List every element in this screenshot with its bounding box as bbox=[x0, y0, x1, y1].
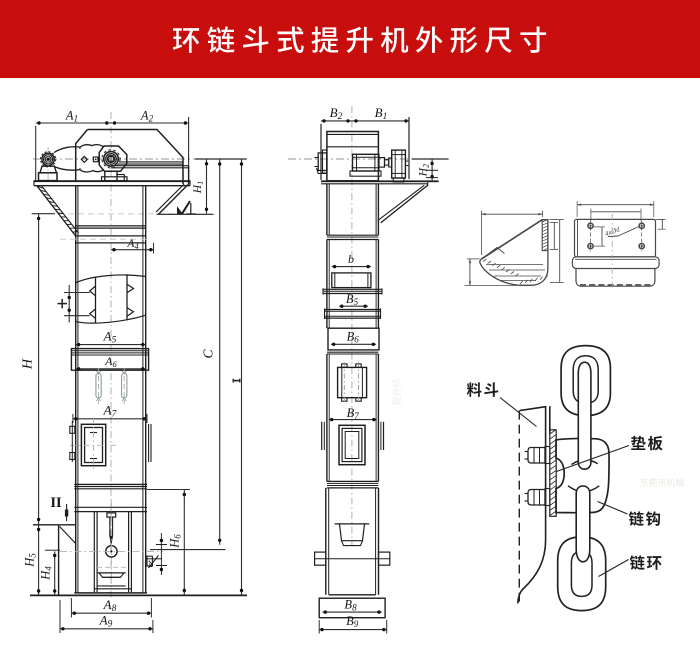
svg-text:II: II bbox=[50, 495, 62, 511]
svg-text:东莞市机械: 东莞市机械 bbox=[639, 477, 684, 488]
svg-text:H: H bbox=[21, 358, 36, 370]
svg-text:C: C bbox=[201, 349, 216, 359]
svg-text:b: b bbox=[348, 252, 354, 266]
svg-text:提升机: 提升机 bbox=[391, 378, 402, 405]
